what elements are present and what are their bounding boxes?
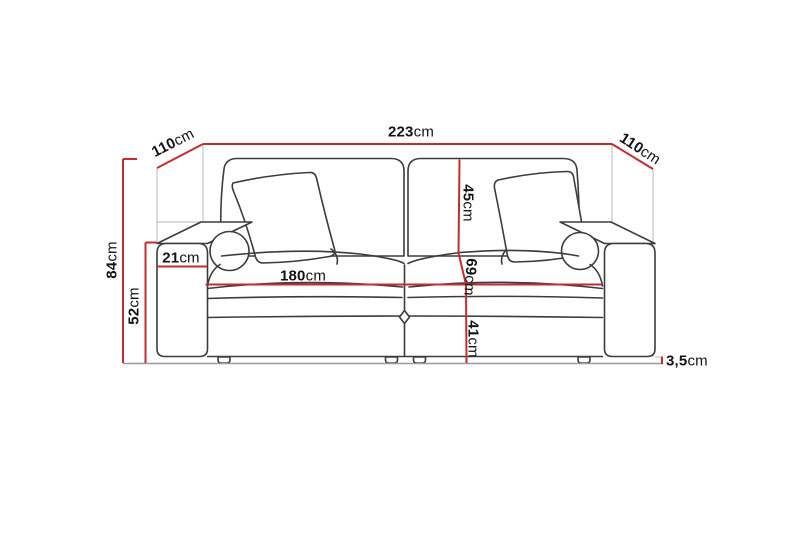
dim-value: 69	[462, 258, 480, 276]
dim-unit: cm	[414, 124, 434, 141]
dim-value: 45	[460, 184, 477, 201]
dim-unit: cm	[104, 241, 121, 261]
dim-unit: cm	[465, 337, 482, 357]
dim-value: 41	[465, 320, 482, 337]
dim-unit: cm	[460, 275, 478, 297]
sofa-dimension-diagram: 223cm 110cm 110cm 84cm 52cm 21cm 180cm 4…	[0, 0, 800, 533]
dim-value: 21	[162, 250, 179, 267]
foot-right	[578, 357, 590, 363]
dim-unit: cm	[460, 201, 477, 221]
dim-label-backrest-height: 45cm	[460, 184, 477, 222]
foot-left	[218, 357, 230, 363]
foot-center-left	[386, 357, 398, 363]
bolster-right	[562, 233, 599, 270]
dim-unit: cm	[306, 268, 326, 285]
dim-label-seat-depth: 69cm	[460, 258, 480, 297]
dim-label-total-width: 223cm	[388, 124, 434, 141]
seat-side-bulge-right	[590, 265, 603, 287]
dim-label-leg-height: 3,5cm	[666, 353, 708, 370]
dim-label-armrest-width: 21cm	[162, 250, 200, 267]
dim-label-seat-height: 41cm	[465, 320, 482, 358]
dim-label-seat-width: 180cm	[280, 268, 326, 285]
dim-value: 223	[388, 124, 414, 141]
dim-unit: cm	[126, 287, 143, 307]
bolster-left	[210, 232, 249, 271]
dim-value: 3,5	[666, 353, 687, 370]
foot-center-right	[414, 357, 426, 363]
dim-value: 52	[126, 308, 143, 325]
dim-label-total-height: 84cm	[104, 241, 121, 279]
armrest-right-front	[605, 244, 656, 357]
dim-value: 84	[104, 262, 121, 279]
sofa-outline	[157, 159, 655, 364]
dim-label-armrest-height: 52cm	[126, 287, 143, 325]
center-seam-diamond	[400, 311, 410, 324]
dim-value: 180	[280, 268, 306, 285]
dim-unit: cm	[687, 353, 707, 370]
dim-unit: cm	[179, 250, 199, 267]
